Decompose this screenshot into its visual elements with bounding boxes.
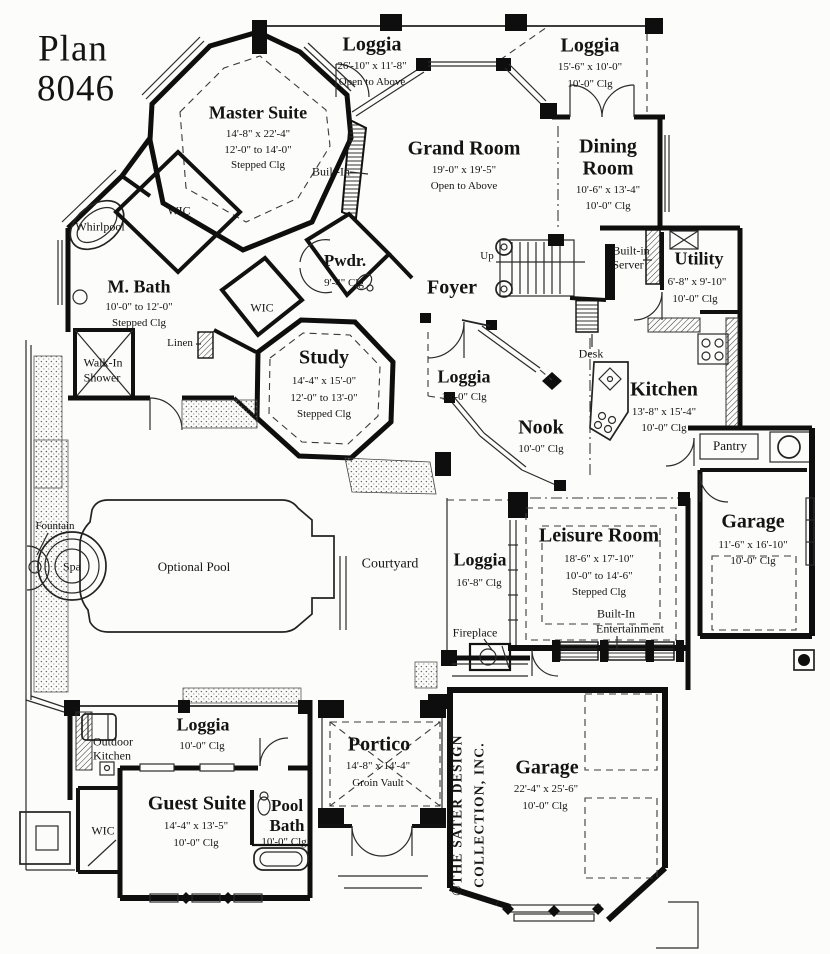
room-loggia-rear: Loggia (176, 716, 229, 735)
plan-number: 8046 (37, 71, 115, 110)
room-m-bath-clg2: Stepped Clg (112, 318, 166, 330)
outdoor-kitchen-label-2: Kitchen (93, 750, 131, 763)
whirlpool-label: Whirlpool (75, 221, 124, 234)
floor-plan: Plan 8046 Loggia 26'-10" x 11'-8" Open t… (0, 0, 830, 954)
room-leisure-dim: 18'-6" x 17'-10" (564, 554, 634, 566)
room-foyer: Foyer (427, 278, 477, 299)
room-guest-suite-dim: 14'-4" x 13'-5" (164, 821, 228, 833)
room-portico: Portico (348, 735, 410, 756)
room-garage-main: Garage (515, 758, 578, 779)
room-loggia-leisure-clg: 16'-8" Clg (456, 578, 501, 590)
room-utility: Utility (675, 250, 724, 269)
room-dining-dim: 10'-6" x 13'-4" (576, 185, 640, 197)
room-kitchen-clg: 10'-0" Clg (641, 423, 686, 435)
room-loggia-upper-right: Loggia (561, 36, 620, 57)
room-garage-right-clg: 10'-0" Clg (730, 556, 775, 568)
room-utility-clg: 10'-0" Clg (672, 294, 717, 306)
room-m-bath: M. Bath (108, 278, 171, 297)
room-dining-2: Room (582, 159, 633, 180)
fireplace-label: Fireplace (453, 627, 498, 640)
room-leisure: Leisure Room (539, 526, 659, 547)
outdoor-kitchen-label-1: Outdoor (93, 736, 133, 749)
pantry-label: Pantry (713, 439, 747, 453)
room-utility-dim: 6'-8" x 9'-10" (668, 277, 727, 289)
room-guest-suite-clg: 10'-0" Clg (173, 838, 218, 850)
room-kitchen-dim: 13'-8" x 15'-4" (632, 407, 696, 419)
spa-label: Spa (63, 561, 81, 574)
linen-label: Linen (167, 338, 193, 350)
room-garage-main-dim: 22'-4" x 25'-6" (514, 784, 578, 796)
room-loggia-upper-right-clg: 10'-0" Clg (567, 79, 612, 91)
room-nook-clg: 10'-0" Clg (518, 444, 563, 456)
room-garage-main-clg: 10'-0" Clg (522, 801, 567, 813)
room-guest-suite: Guest Suite (148, 794, 246, 815)
room-pool-bath-clg: 10'-0" Clg (261, 837, 306, 849)
room-master-suite-dim: 14'-8" x 22'-4" (226, 129, 290, 141)
room-portico-note: Groin Vault (352, 778, 403, 790)
room-loggia-top: Loggia (343, 35, 402, 56)
room-kitchen: Kitchen (630, 380, 698, 401)
built-in-server-label-1: Built-in (612, 245, 649, 258)
room-leisure-clg2: Stepped Clg (572, 587, 626, 599)
room-master-suite-clg: 12'-0" to 14'-0" (224, 145, 291, 157)
room-master-suite: Master Suite (209, 104, 307, 123)
wic-hall-label: WIC (250, 302, 273, 315)
plan-title: Plan (38, 31, 108, 70)
room-loggia-rear-clg: 10'-0" Clg (179, 741, 224, 753)
room-dining: Dining (579, 137, 637, 158)
room-pool-bath: Pool (271, 797, 303, 815)
room-dining-clg: 10'-0" Clg (585, 201, 630, 213)
built-in-entertainment-label-1: Built-In (597, 608, 635, 621)
room-loggia-upper-right-dim: 15'-6" x 10'-0" (558, 62, 622, 74)
fountain-label: Fountain (35, 521, 74, 533)
courtyard-label: Courtyard (362, 558, 419, 573)
walk-in-shower-label-2: Shower (84, 372, 121, 385)
room-pool-bath-2: Bath (270, 817, 305, 835)
room-loggia-mid: Loggia (437, 368, 490, 387)
room-loggia-leisure: Loggia (453, 551, 506, 570)
room-study-dim: 14'-4" x 15'-0" (292, 376, 356, 388)
room-loggia-top-note: Open to Above (339, 77, 406, 89)
room-nook: Nook (518, 418, 564, 439)
room-grand-room-dim: 19'-0" x 19'-5" (432, 165, 496, 177)
walk-in-shower-label-1: Walk-In (83, 357, 122, 370)
room-study-clg2: Stepped Clg (297, 409, 351, 421)
room-garage-right-dim: 11'-6" x 16'-10" (718, 540, 787, 552)
copyright-line-1: ©THE SATER DESIGN (446, 734, 468, 896)
room-garage-right: Garage (721, 512, 784, 533)
room-pwdr: Pwdr. (324, 252, 366, 270)
room-grand-room-note: Open to Above (431, 181, 498, 193)
room-loggia-top-dim: 26'-10" x 11'-8" (337, 61, 406, 73)
room-grand-room: Grand Room (408, 139, 521, 160)
room-loggia-mid-clg: 10'-0" Clg (441, 392, 486, 404)
wic-guest-label: WIC (91, 825, 114, 838)
room-m-bath-clg: 10'-0" to 12'-0" (105, 302, 172, 314)
copyright-notice: ©THE SATER DESIGN COLLECTION, INC. (446, 734, 489, 896)
room-study: Study (299, 348, 349, 369)
optional-pool-label: Optional Pool (158, 560, 231, 574)
room-study-clg: 12'-0" to 13'-0" (290, 393, 357, 405)
room-master-suite-clg2: Stepped Clg (231, 160, 285, 172)
copyright-line-2: COLLECTION, INC. (468, 734, 490, 896)
room-pwdr-clg: 9'-4" Clg (324, 278, 364, 290)
built-in-server-label-2: Server (612, 259, 643, 272)
desk-label: Desk (579, 348, 604, 361)
stairs-up-label: Up (480, 251, 493, 263)
built-in-entertainment-label-2: Entertainment (596, 623, 664, 636)
room-portico-dim: 14'-8" x 14'-4" (346, 761, 410, 773)
built-in-label: Built-In (312, 166, 350, 179)
room-leisure-clg: 10'-0" to 14'-6" (565, 571, 632, 583)
wic-master-label: WIC (167, 205, 190, 218)
